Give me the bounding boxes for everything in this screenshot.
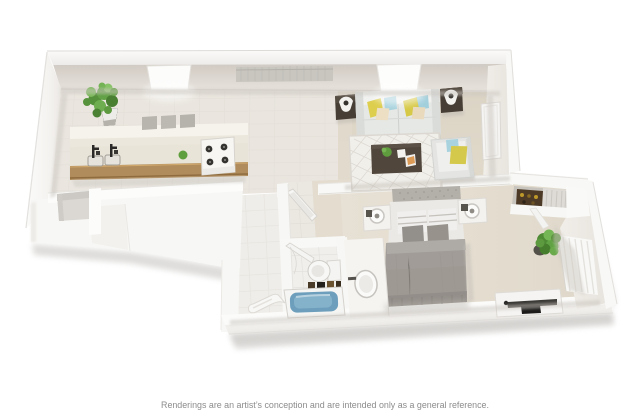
svg-text:Renderings are an artist’s con: Renderings are an artist’s conception an… [161,400,489,410]
